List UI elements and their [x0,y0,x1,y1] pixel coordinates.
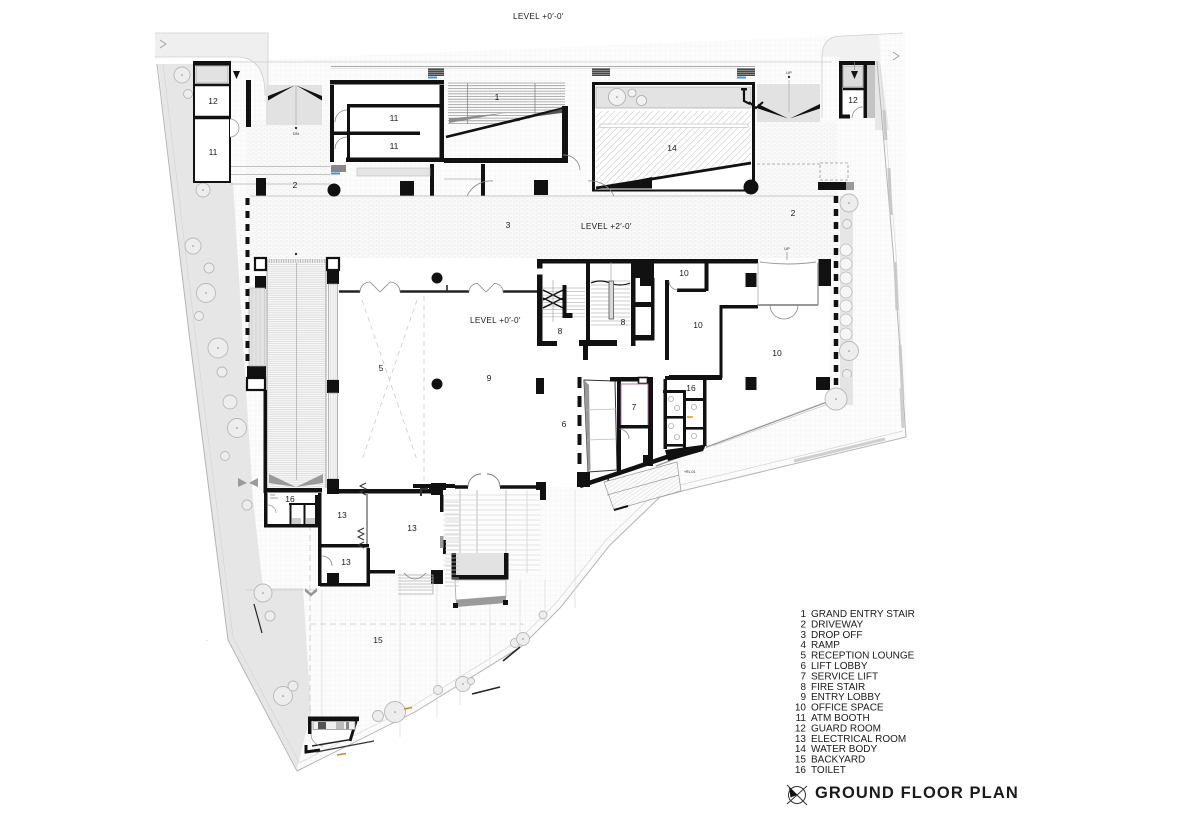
svg-text:1: 1 [495,92,500,102]
svg-text:GRAND ENTRY STAIR: GRAND ENTRY STAIR [811,609,915,620]
svg-text:ENTRY LOBBY: ENTRY LOBBY [811,692,881,703]
svg-text:10: 10 [679,268,689,278]
svg-text:DN: DN [293,131,299,136]
svg-text:13: 13 [341,557,351,567]
svg-text:16: 16 [686,383,696,393]
svg-text:GUARD ROOM: GUARD ROOM [811,723,881,734]
svg-text:3: 3 [506,220,511,230]
svg-text:2: 2 [800,619,806,630]
svg-text:UP: UP [784,246,790,251]
svg-text:14: 14 [795,744,807,755]
svg-text:+RL.01: +RL.01 [684,470,695,474]
svg-text:5: 5 [379,363,384,373]
svg-text:15: 15 [795,755,807,766]
svg-text:GROUND FLOOR PLAN: GROUND FLOOR PLAN [815,784,1019,802]
svg-text:13: 13 [407,523,417,533]
svg-text:10: 10 [795,703,807,714]
svg-text:LIFT LOBBY: LIFT LOBBY [811,661,868,672]
svg-text:LEVEL +0′-0′: LEVEL +0′-0′ [513,12,564,21]
svg-text:14: 14 [667,143,677,153]
svg-text:ELECTRICAL ROOM: ELECTRICAL ROOM [811,734,906,745]
svg-text:9: 9 [800,692,806,703]
svg-text:11: 11 [390,141,399,151]
svg-text:BACKYARD: BACKYARD [811,755,865,766]
svg-text:UP: UP [786,70,792,75]
svg-text:11: 11 [390,113,399,123]
svg-text:RECEPTION LOUNGE: RECEPTION LOUNGE [811,651,915,662]
svg-text:6: 6 [800,661,806,672]
svg-text:9: 9 [487,373,492,383]
svg-text:2: 2 [791,208,796,218]
svg-text:13: 13 [337,510,347,520]
svg-text:8: 8 [558,326,563,336]
svg-text:LEVEL +0′-0′: LEVEL +0′-0′ [470,316,521,325]
svg-text:7: 7 [632,402,637,412]
svg-text:8: 8 [800,682,806,693]
svg-text:5: 5 [800,651,806,662]
svg-text:13: 13 [795,734,807,745]
svg-text:8: 8 [621,317,626,327]
svg-text:2: 2 [293,180,298,190]
svg-text:16: 16 [285,494,295,504]
svg-text:15: 15 [373,635,383,645]
svg-text:TOILET: TOILET [811,765,846,776]
svg-text:12: 12 [208,96,218,106]
svg-text:10: 10 [693,320,703,330]
svg-text:12: 12 [795,723,807,734]
svg-text:OFFICE SPACE: OFFICE SPACE [811,703,884,714]
svg-text:DRIVEWAY: DRIVEWAY [811,619,864,630]
svg-text:10: 10 [772,348,782,358]
svg-text:WATER BODY: WATER BODY [811,744,877,755]
svg-text:12: 12 [848,95,858,105]
svg-text:4: 4 [800,640,806,651]
svg-text:SERVICE LIFT: SERVICE LIFT [811,671,878,682]
svg-text:ATM BOOTH: ATM BOOTH [811,713,870,724]
svg-text:11: 11 [209,147,218,157]
svg-text:DROP OFF: DROP OFF [811,630,862,641]
svg-text:6: 6 [562,419,567,429]
svg-text:1: 1 [800,609,806,620]
svg-text:FIRE STAIR: FIRE STAIR [811,682,865,693]
svg-text:3: 3 [800,630,806,641]
svg-text:11: 11 [796,713,807,724]
svg-text:RAMP: RAMP [811,640,840,651]
svg-text:7: 7 [800,671,806,682]
svg-text:LEVEL +2′-0′: LEVEL +2′-0′ [581,222,632,231]
svg-text:16: 16 [795,765,807,776]
